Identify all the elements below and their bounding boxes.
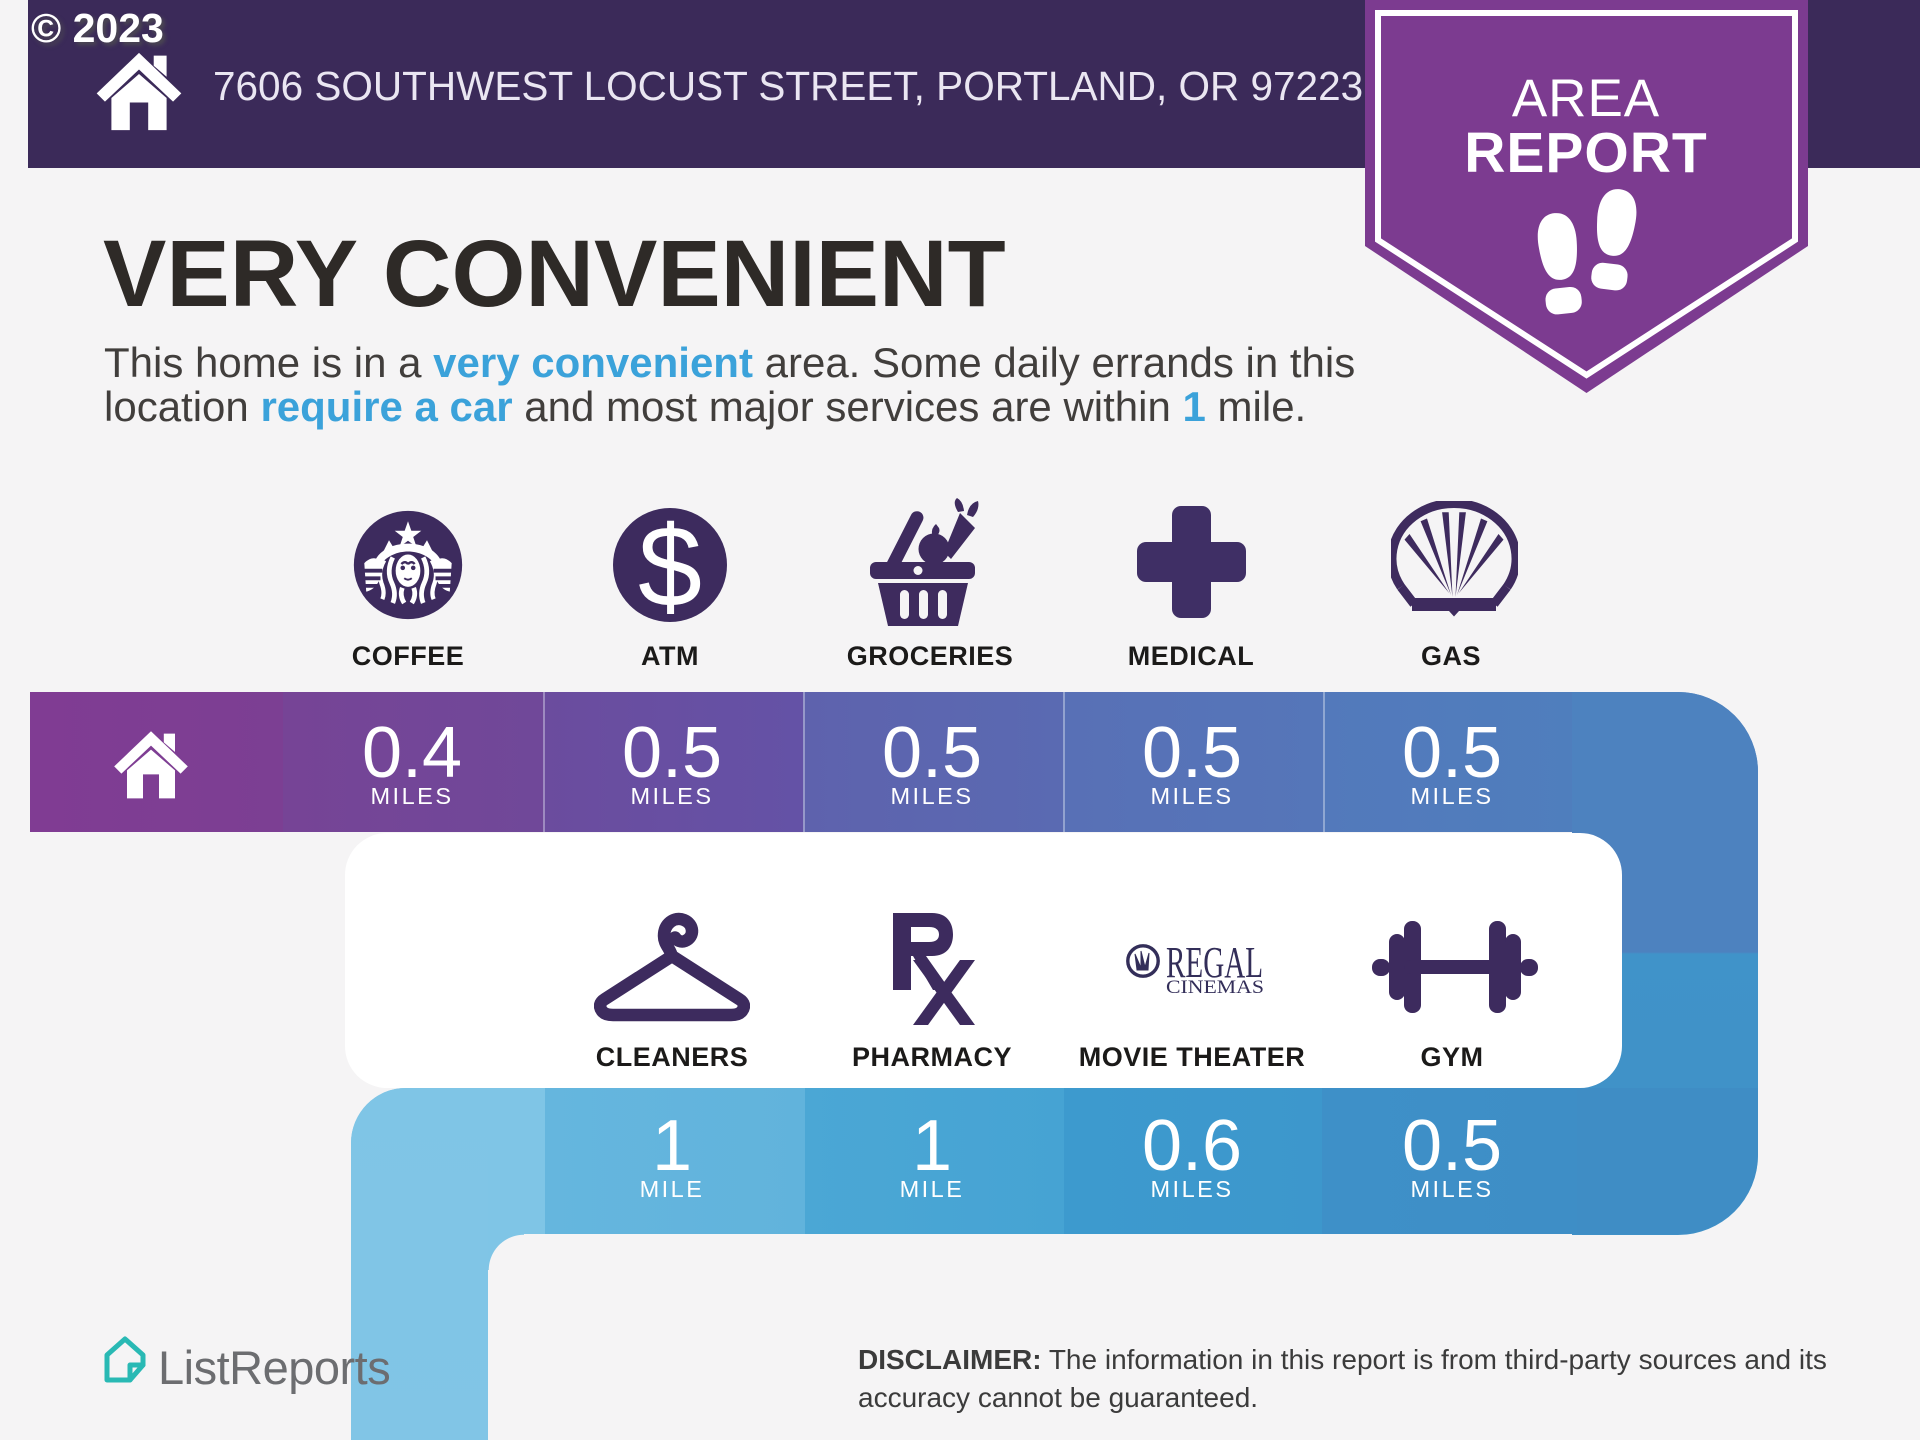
svg-text:AREA: AREA [1512,69,1660,128]
svg-text:$: $ [638,506,702,624]
svg-text:CINEMAS: CINEMAS [1166,977,1264,998]
svg-text:REPORT: REPORT [1464,121,1708,185]
